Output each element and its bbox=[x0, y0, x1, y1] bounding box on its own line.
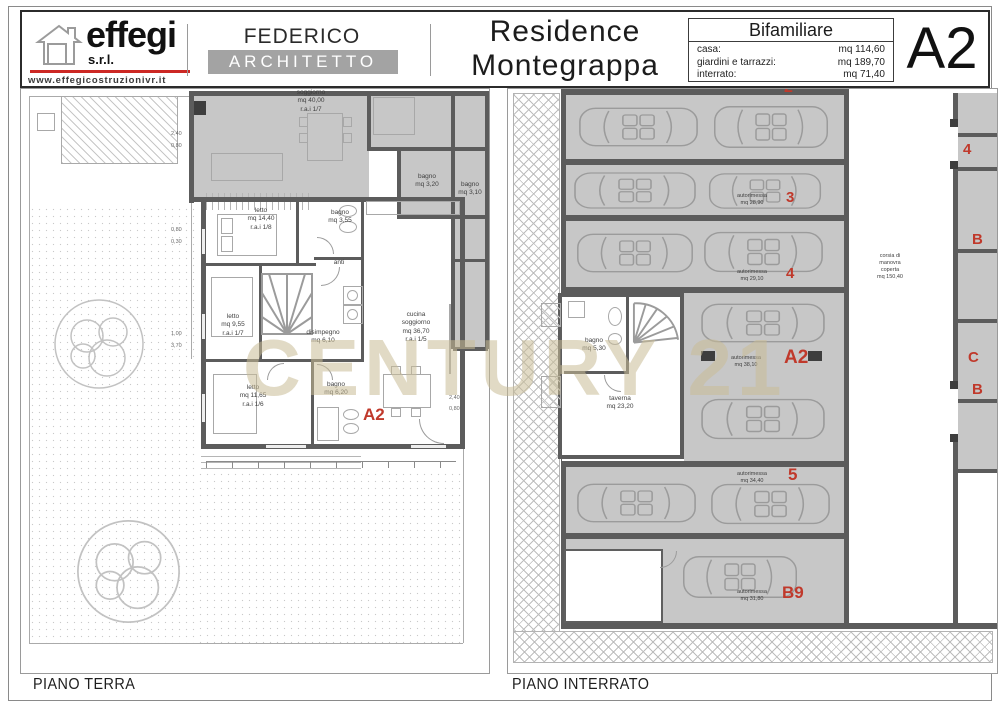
wall bbox=[367, 147, 488, 151]
project-title-line1: Residence bbox=[440, 15, 690, 49]
edge-garage-number: C bbox=[968, 349, 979, 366]
wall bbox=[958, 319, 997, 323]
wall bbox=[453, 259, 488, 262]
company-name: effegi bbox=[86, 14, 176, 56]
car-icon bbox=[708, 479, 833, 529]
architect-role: ARCHITETTO bbox=[208, 50, 398, 74]
wall bbox=[958, 399, 997, 403]
garage-number: A2 bbox=[784, 347, 808, 369]
window bbox=[202, 394, 205, 422]
garage-number: B9 bbox=[782, 583, 804, 603]
car-icon bbox=[711, 101, 831, 153]
info-label: interrato: bbox=[697, 69, 736, 82]
wall bbox=[958, 469, 997, 473]
dimension-ticks bbox=[206, 461, 456, 468]
header-divider bbox=[430, 24, 431, 76]
property-line bbox=[29, 96, 30, 643]
dimension-label: 0,80 bbox=[171, 143, 182, 149]
dimension-label: 2,40 bbox=[171, 131, 182, 137]
dimension-label: 0,80 bbox=[171, 227, 182, 233]
tree-icon bbox=[49, 294, 149, 394]
table-sketch bbox=[307, 113, 343, 161]
wall bbox=[558, 293, 684, 297]
chair-sketch bbox=[299, 133, 308, 143]
wall bbox=[296, 197, 299, 265]
plan-title-interrato: PIANO INTERRATO bbox=[512, 676, 649, 694]
info-value: mq 189,70 bbox=[838, 57, 885, 70]
unit-type: Bifamiliare bbox=[689, 19, 893, 42]
garage-number: 2 bbox=[784, 88, 793, 97]
info-value: mq 114,60 bbox=[838, 44, 885, 57]
storage-room bbox=[564, 549, 663, 623]
wall-stub bbox=[808, 351, 822, 361]
door-arc bbox=[317, 237, 334, 254]
project-title: Residence Montegrappa bbox=[440, 15, 690, 83]
wall bbox=[367, 93, 371, 151]
garage-label: autorimessa mq 28,90 bbox=[726, 193, 778, 207]
info-value: mq 71,40 bbox=[843, 69, 885, 82]
shower-sketch bbox=[568, 301, 585, 318]
company-suffix: s.r.l. bbox=[88, 52, 114, 67]
door-arc bbox=[321, 267, 340, 286]
room-label-letto1: letto mq 14,40 r.a.i 1/8 bbox=[226, 207, 296, 232]
info-row: giardini e tarrazzi: mq 189,70 bbox=[697, 57, 885, 70]
kitchen-counter bbox=[366, 201, 460, 215]
edge-garage-number: 4 bbox=[963, 141, 971, 158]
room-label-bagno1: bagno mq 3,55 bbox=[319, 209, 361, 226]
project-title-line2: Montegrappa bbox=[440, 49, 690, 83]
header-divider bbox=[187, 24, 188, 76]
dimension-label: 3,70 bbox=[171, 343, 182, 349]
info-label: giardini e tarrazzi: bbox=[697, 57, 776, 70]
pillow-sketch bbox=[221, 236, 233, 252]
dimension-label: 0,30 bbox=[171, 239, 182, 245]
wall bbox=[958, 133, 997, 137]
room-label-bagno-est: bagno mq 3,10 bbox=[455, 181, 485, 198]
car-icon bbox=[574, 479, 699, 527]
sofa-sketch bbox=[211, 153, 283, 181]
edge-garage-number: B bbox=[972, 381, 983, 398]
chair-sketch bbox=[299, 117, 308, 127]
effegi-logo-icon bbox=[34, 20, 84, 70]
wall bbox=[958, 167, 997, 171]
unit-code: A2 bbox=[896, 12, 988, 86]
edge-garage-number: B bbox=[972, 231, 983, 248]
garage-label: autorimessa mq 34,40 bbox=[726, 471, 778, 485]
property-line bbox=[463, 449, 464, 643]
car-icon bbox=[571, 168, 699, 213]
bed-sketch bbox=[373, 97, 415, 135]
garden-area bbox=[197, 471, 463, 643]
plan-title-terra: PIANO TERRA bbox=[33, 676, 135, 694]
chair-sketch bbox=[343, 133, 352, 143]
property-line bbox=[29, 643, 463, 644]
gate-post bbox=[37, 113, 55, 131]
drawing-sheet: effegi s.r.l. www.effegicostruzionivr.it… bbox=[0, 0, 1000, 706]
room-label-anti: anti bbox=[321, 259, 357, 267]
appliance-burner bbox=[347, 290, 358, 301]
unit-info-box: Bifamiliare casa: mq 114,60 giardini e t… bbox=[688, 18, 894, 82]
toilet-sketch bbox=[343, 423, 359, 434]
ground-hatch bbox=[513, 631, 993, 663]
tree-icon bbox=[71, 514, 186, 629]
logo-rule bbox=[30, 70, 190, 73]
dimension-label: 1,00 bbox=[171, 331, 182, 337]
door-arc bbox=[419, 419, 444, 444]
planter-hatch bbox=[61, 96, 178, 164]
window bbox=[411, 445, 446, 448]
room-label-bagno-nord: bagno mq 3,20 bbox=[401, 173, 453, 190]
garage-number: 3 bbox=[786, 189, 794, 206]
wall bbox=[397, 215, 488, 219]
wall bbox=[558, 455, 684, 459]
wall bbox=[958, 249, 997, 253]
room-label-soggiorno: soggiorno mq 40,00 r.a.i 1/7 bbox=[269, 89, 353, 114]
aisle-label: corsia di manovra coperta mq 150,40 bbox=[860, 253, 920, 282]
wall bbox=[561, 623, 997, 629]
chair-sketch bbox=[343, 117, 352, 127]
neighbor-strip bbox=[453, 93, 488, 349]
garage-number: 4 bbox=[786, 265, 794, 282]
garage-label: autorimessa mq 29,10 bbox=[726, 269, 778, 283]
wall bbox=[844, 89, 849, 629]
appliance-burner bbox=[347, 309, 358, 320]
wall bbox=[485, 93, 489, 349]
title-block: effegi s.r.l. www.effegicostruzionivr.it… bbox=[20, 10, 990, 88]
century21-watermark: CENTURY 21 bbox=[243, 322, 786, 414]
garage-label: autorimessa mq 31,80 bbox=[726, 589, 778, 603]
window bbox=[202, 229, 205, 254]
window bbox=[202, 314, 205, 339]
car-icon bbox=[576, 103, 701, 151]
info-row: casa: mq 114,60 bbox=[697, 44, 885, 57]
info-label: casa: bbox=[697, 44, 721, 57]
chimney bbox=[194, 101, 206, 115]
info-row: interrato: mq 71,40 bbox=[697, 69, 885, 82]
company-website: www.effegicostruzionivr.it bbox=[28, 75, 166, 86]
garage-number: 5 bbox=[788, 465, 797, 485]
car-icon bbox=[574, 229, 696, 277]
window bbox=[266, 445, 306, 448]
